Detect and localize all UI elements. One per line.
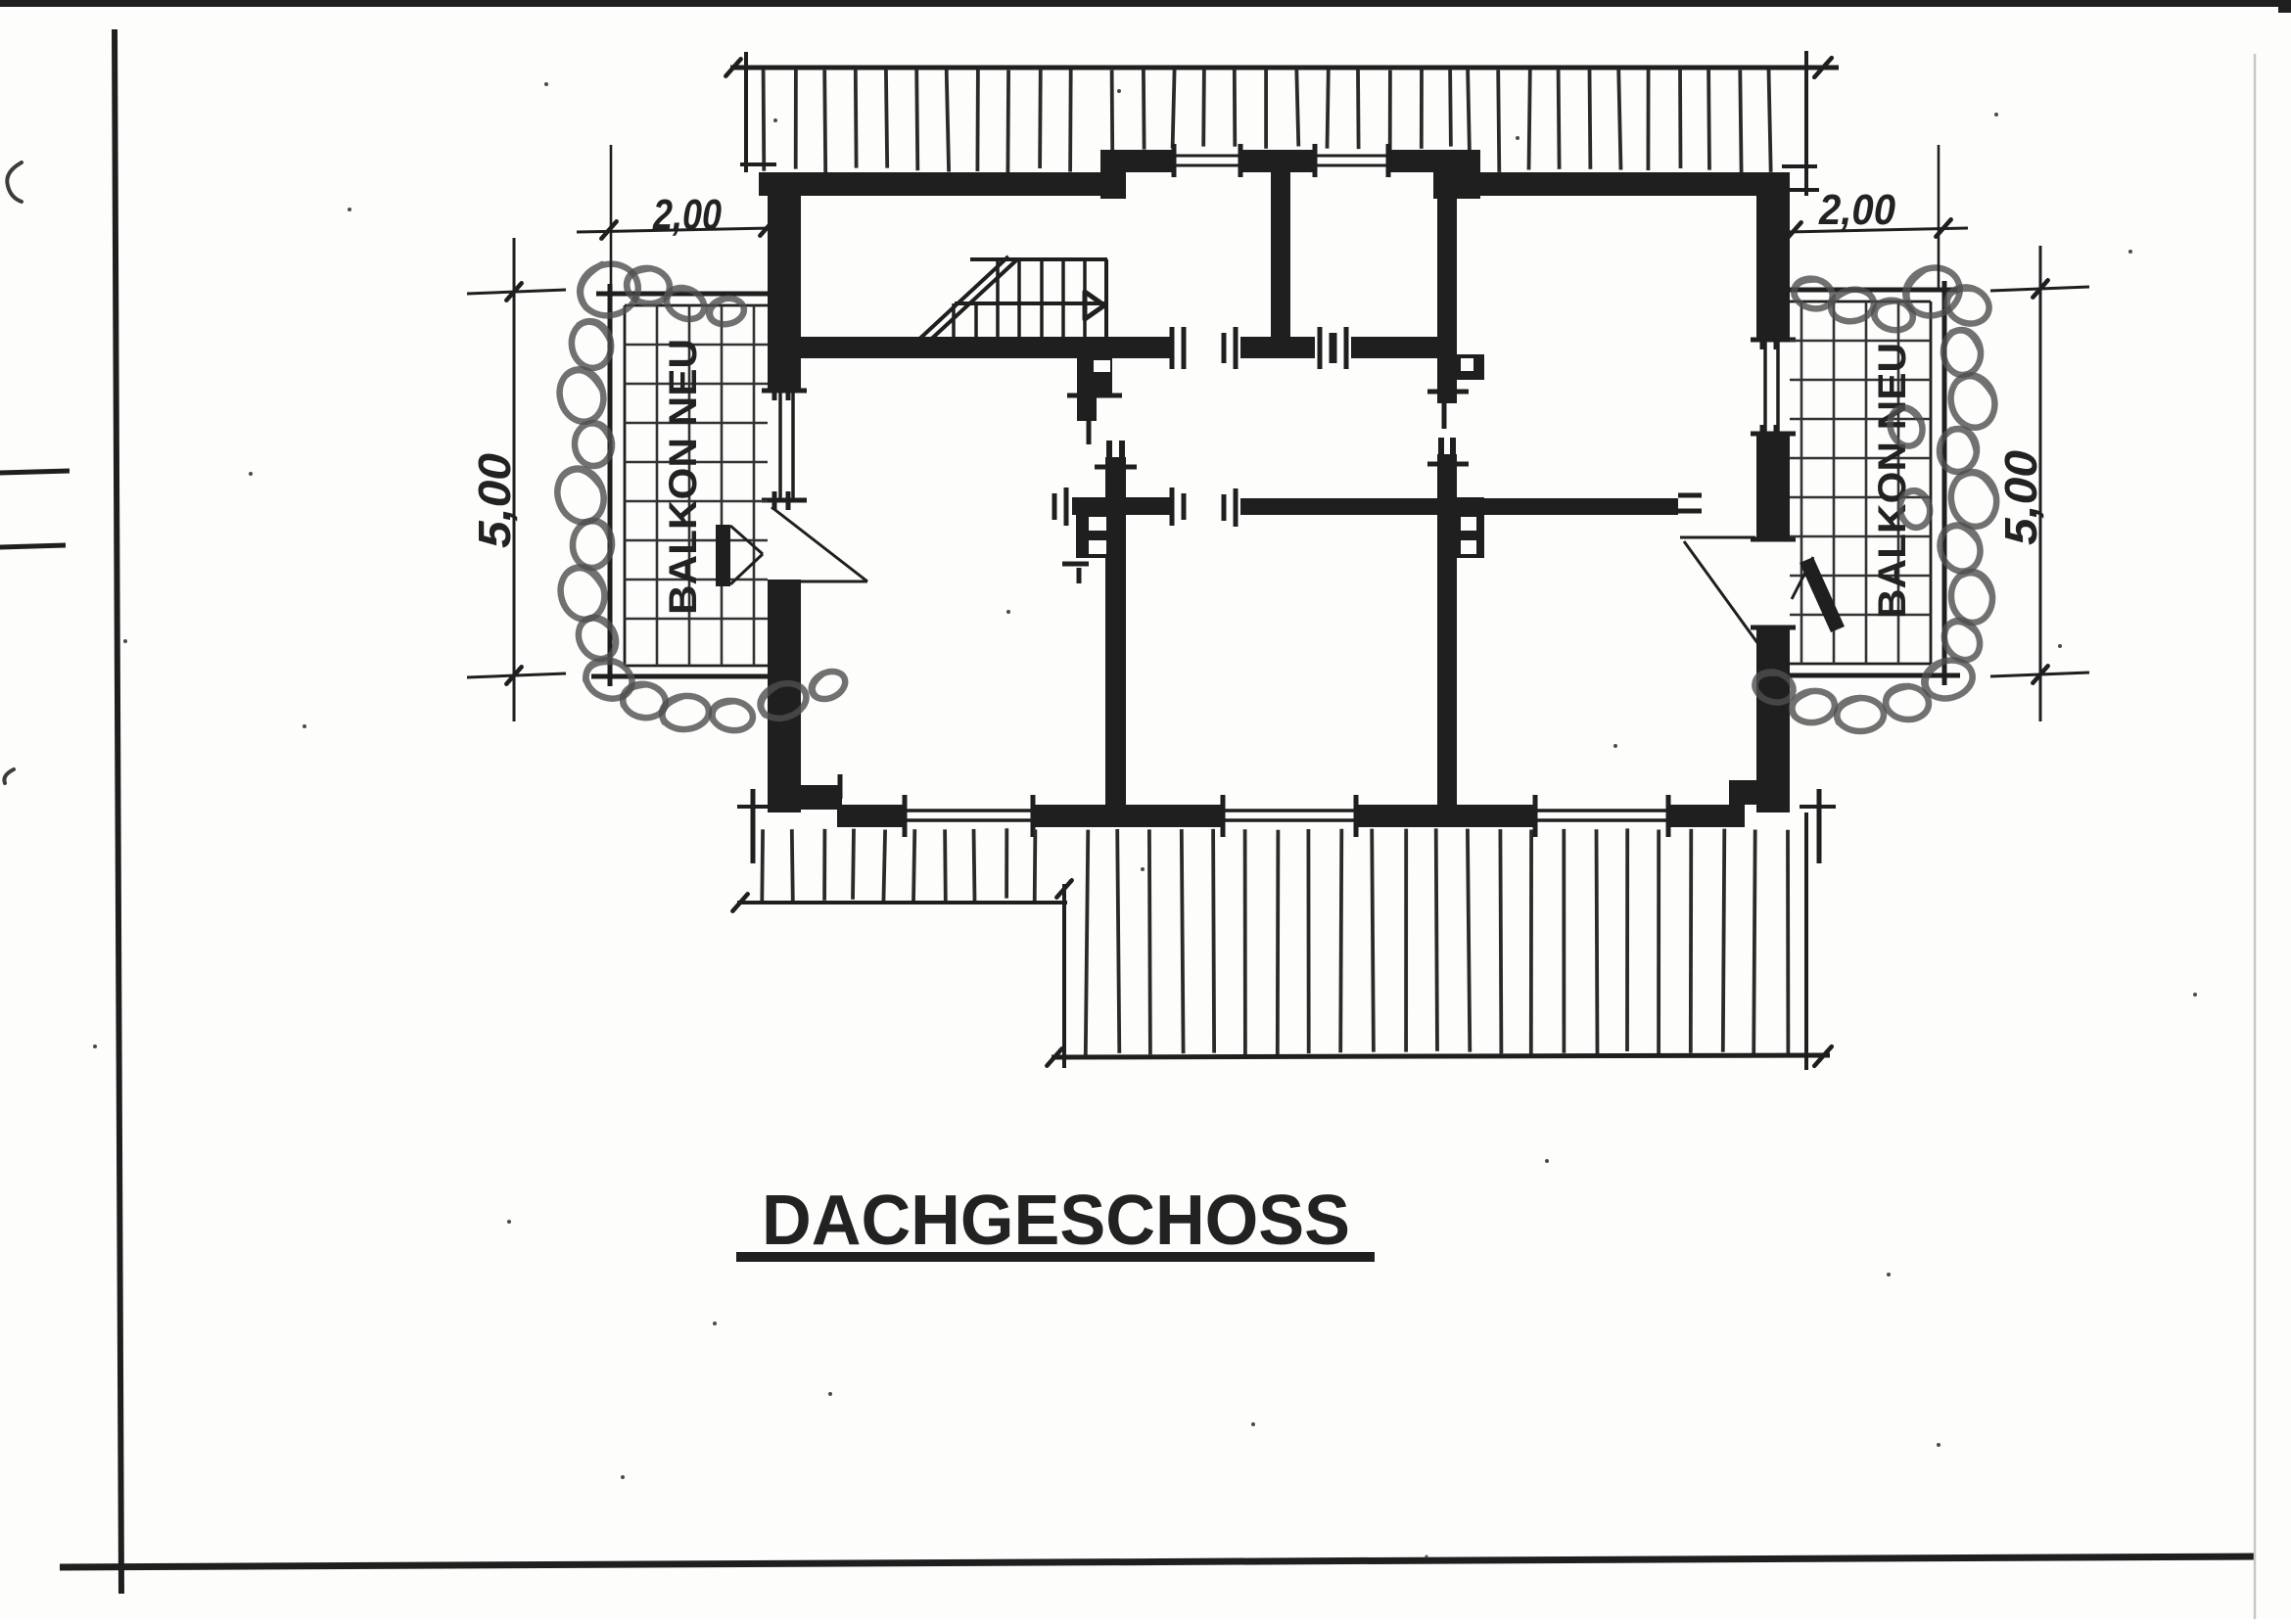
svg-text:BALKON NEU: BALKON NEU [662,339,705,615]
svg-text:5,00: 5,00 [1995,450,2046,545]
svg-text:2,00: 2,00 [1818,186,1895,234]
svg-text:BALKON NEU: BALKON NEU [1871,343,1914,619]
svg-text:5,00: 5,00 [469,453,520,548]
svg-text:DACHGESCHOSS: DACHGESCHOSS [762,1182,1350,1260]
